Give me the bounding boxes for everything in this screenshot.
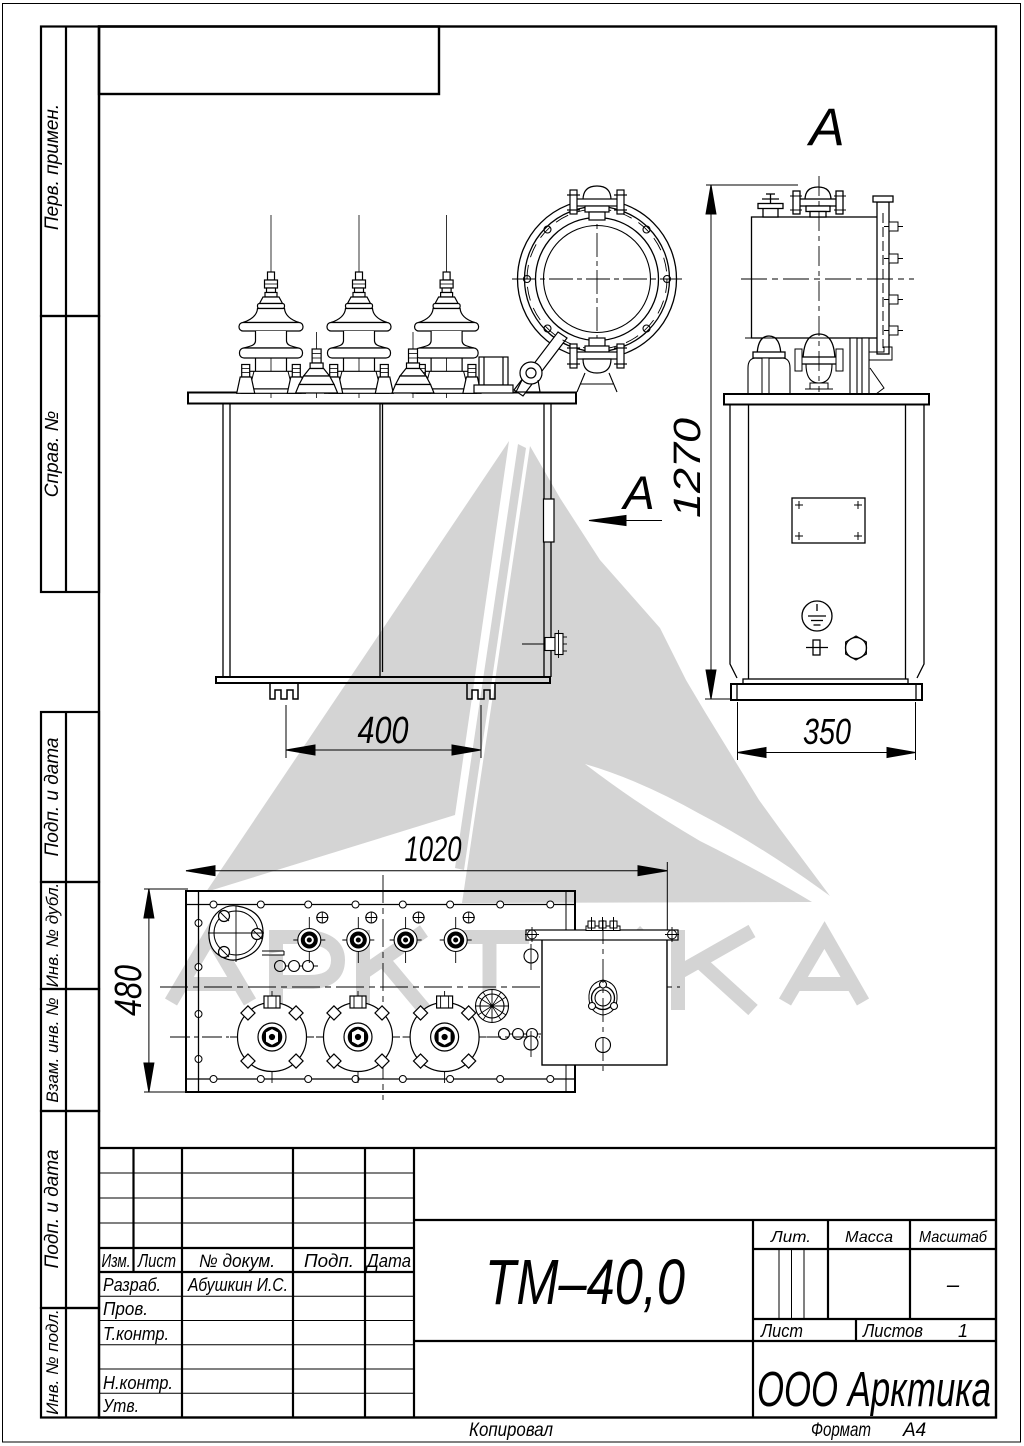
svg-text:Лист: Лист [760,1321,803,1341]
svg-text:А4: А4 [902,1420,926,1441]
svg-text:ТМ–40,0: ТМ–40,0 [485,1246,685,1318]
svg-text:Лит.: Лит. [770,1229,811,1246]
svg-text:Дата: Дата [365,1251,411,1271]
svg-text:Пров.: Пров. [103,1299,148,1319]
svg-text:Масса: Масса [845,1229,893,1246]
svg-text:480: 480 [108,965,150,1016]
svg-text:350: 350 [803,711,851,752]
svg-text:Масштаб: Масштаб [919,1229,988,1246]
svg-text:Инв. № подл.: Инв. № подл. [43,1309,62,1415]
svg-text:Лист: Лист [137,1251,176,1271]
svg-text:ООО Арктика: ООО Арктика [757,1363,991,1417]
svg-text:Т.контр.: Т.контр. [103,1324,169,1344]
svg-text:400: 400 [358,710,409,752]
svg-text:1270: 1270 [667,418,709,518]
svg-text:Листов: Листов [862,1321,923,1341]
svg-text:Подп. и дата: Подп. и дата [42,738,63,857]
svg-text:Подп.: Подп. [304,1251,354,1271]
svg-text:Взам. инв. №: Взам. инв. № [43,997,62,1102]
svg-text:Абушкин И.С.: Абушкин И.С. [187,1275,288,1295]
svg-text:Перв. примен.: Перв. примен. [42,104,63,230]
svg-text:Утв.: Утв. [102,1396,139,1416]
svg-text:Инв. № дубл.: Инв. № дубл. [43,883,62,988]
svg-text:Разраб.: Разраб. [103,1275,161,1295]
svg-text:А: А [620,466,654,519]
svg-text:1020: 1020 [405,830,462,869]
svg-text:Изм.: Изм. [102,1251,131,1271]
svg-text:1: 1 [958,1321,968,1341]
svg-text:Н.контр.: Н.контр. [103,1373,173,1393]
svg-text:Справ. №: Справ. № [42,411,63,497]
svg-text:Подп. и дата: Подп. и дата [42,1150,63,1269]
svg-text:№ докум.: № докум. [199,1251,275,1271]
svg-text:Формат: Формат [811,1420,871,1441]
svg-text:–: – [946,1272,960,1297]
svg-text:А: А [806,98,844,157]
svg-text:Копировал: Копировал [469,1420,553,1441]
